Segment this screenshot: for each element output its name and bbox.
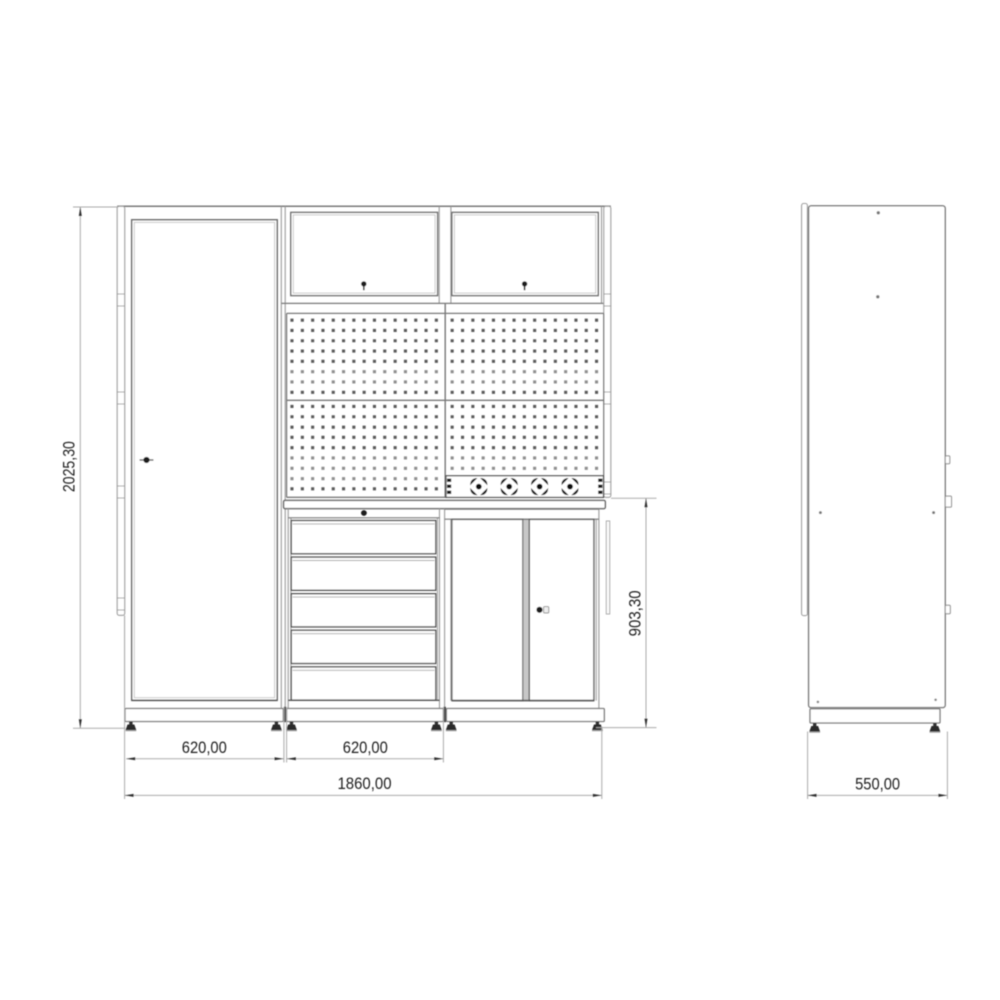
svg-text:2025,30: 2025,30 <box>60 441 79 492</box>
svg-text:620,00: 620,00 <box>343 738 388 757</box>
svg-text:550,00: 550,00 <box>855 775 900 794</box>
svg-text:620,00: 620,00 <box>182 738 227 757</box>
svg-text:903,30: 903,30 <box>626 590 645 636</box>
svg-text:1860,00: 1860,00 <box>338 774 392 793</box>
